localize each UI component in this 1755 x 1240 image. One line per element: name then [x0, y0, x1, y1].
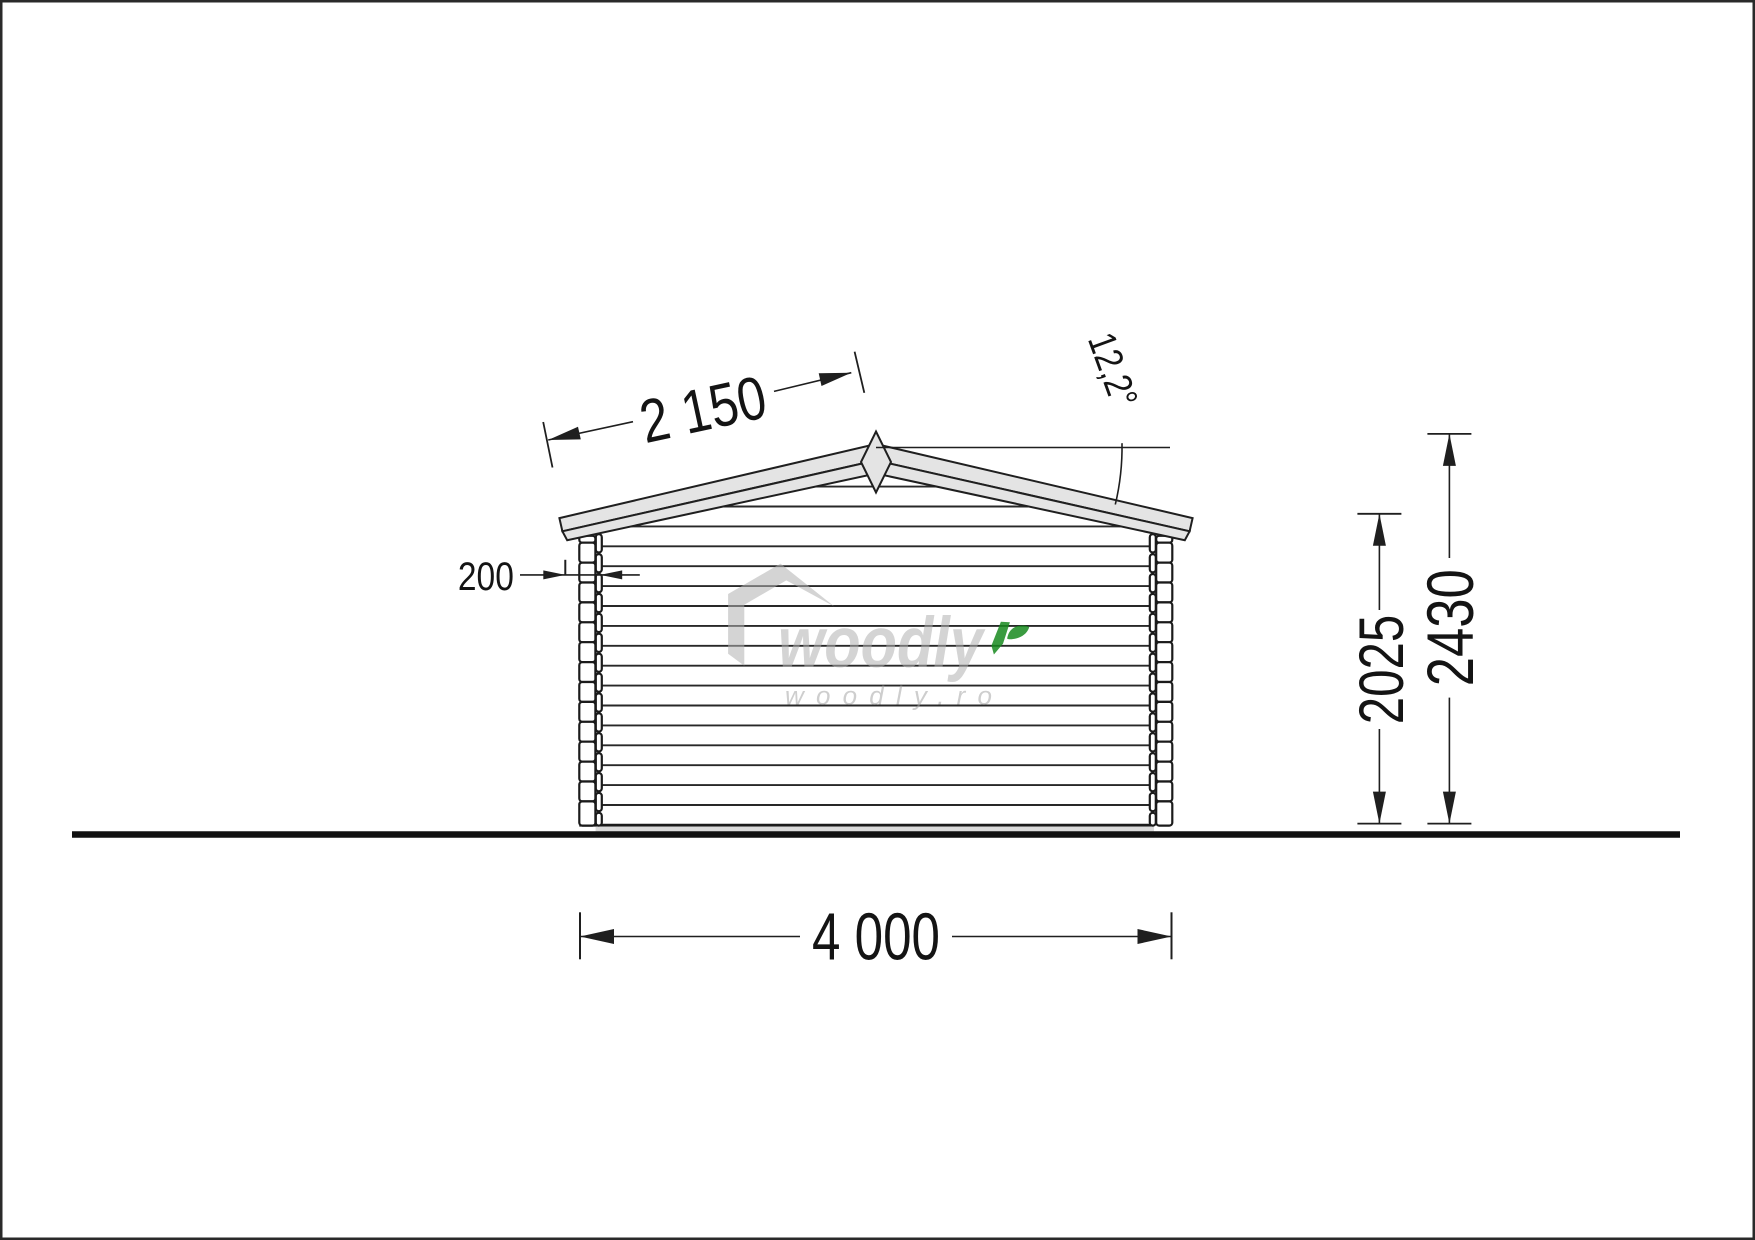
svg-text:2025: 2025	[1347, 615, 1417, 725]
svg-text:woodly.ro: woodly.ro	[785, 681, 1004, 711]
svg-text:woodly: woodly	[778, 604, 986, 683]
svg-text:200: 200	[458, 555, 514, 599]
svg-text:2430: 2430	[1413, 569, 1487, 686]
svg-text:4 000: 4 000	[812, 900, 940, 975]
